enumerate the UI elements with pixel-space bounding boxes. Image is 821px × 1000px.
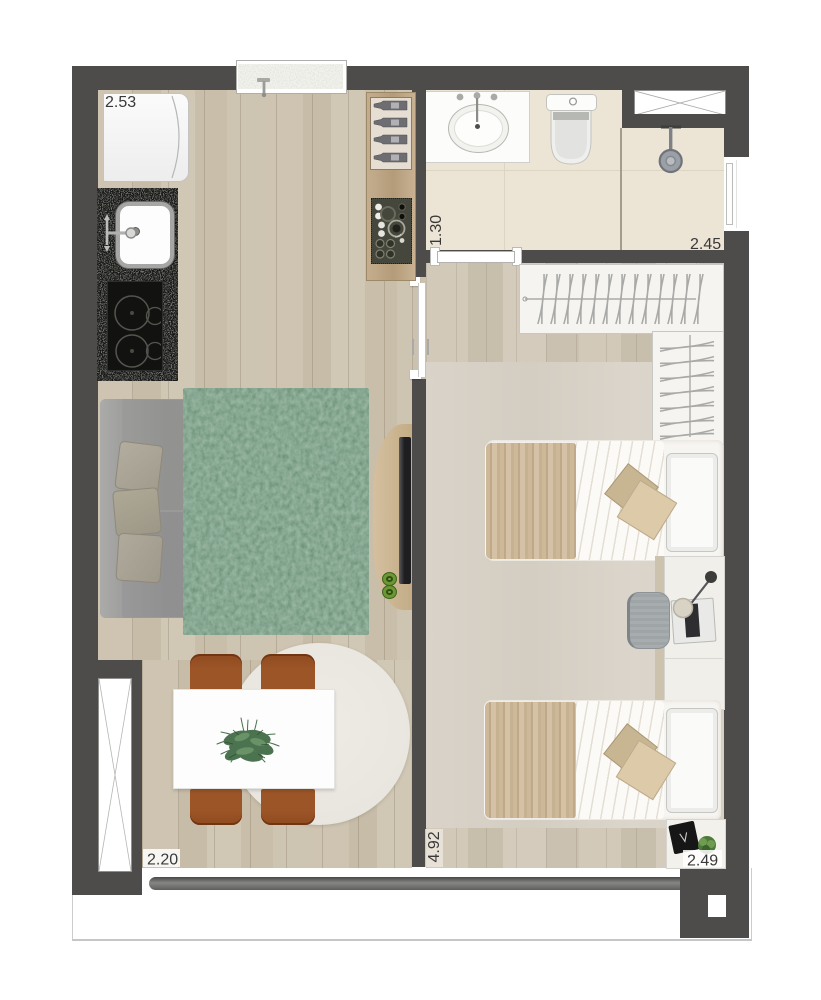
svg-text:2.20: 2.20 [147, 852, 178, 869]
svg-text:1.30: 1.30 [428, 215, 445, 246]
svg-text:4.92: 4.92 [426, 831, 443, 862]
svg-text:2.49: 2.49 [687, 853, 718, 870]
svg-text:2.45: 2.45 [690, 236, 721, 253]
svg-text:2.53: 2.53 [105, 94, 136, 111]
